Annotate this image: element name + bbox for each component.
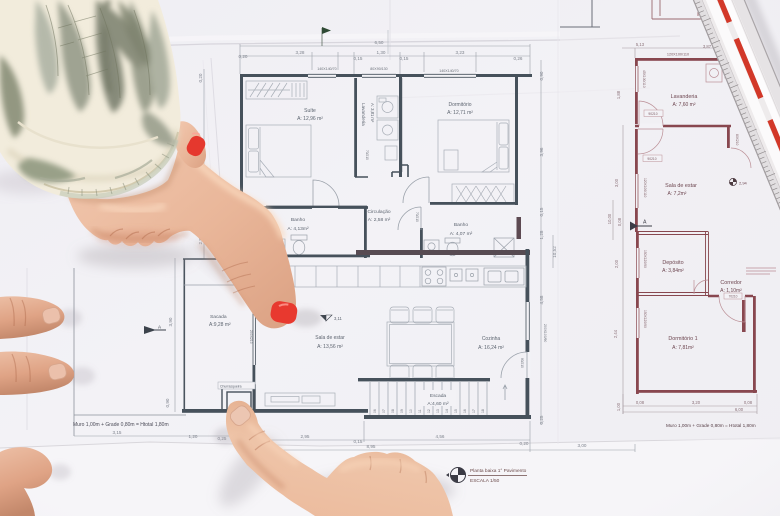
- svg-text:11: 11: [418, 409, 422, 413]
- svg-text:2,44: 2,44: [613, 329, 618, 338]
- svg-text:3,00: 3,00: [614, 178, 619, 187]
- svg-text:07: 07: [382, 409, 386, 413]
- svg-text:Sala de estar: Sala de estar: [315, 335, 345, 341]
- svg-text:Sala de estar: Sala de estar: [665, 183, 697, 189]
- svg-text:Cozinha: Cozinha: [482, 336, 501, 342]
- svg-text:12: 12: [427, 409, 431, 413]
- svg-text:8,95: 8,95: [367, 444, 376, 449]
- svg-text:140X140/70: 140X140/70: [439, 69, 458, 73]
- svg-text:A: 4,07 m²: A: 4,07 m²: [450, 231, 473, 237]
- svg-text:2,94: 2,94: [739, 181, 748, 186]
- svg-text:Depósito: Depósito: [662, 260, 683, 266]
- svg-text:Banho: Banho: [291, 217, 305, 223]
- svg-text:17: 17: [472, 409, 476, 413]
- svg-text:90210: 90210: [648, 112, 657, 116]
- svg-text:A: 7,2m²: A: 7,2m²: [668, 191, 687, 197]
- svg-text:3,90: 3,90: [168, 317, 173, 326]
- svg-text:3,23: 3,23: [456, 50, 465, 55]
- svg-text:0,15: 0,15: [354, 56, 363, 61]
- svg-text:3,96: 3,96: [539, 147, 544, 156]
- svg-text:1,88: 1,88: [616, 90, 621, 99]
- svg-text:0,90: 0,90: [165, 398, 170, 407]
- svg-text:A: 16,24 m²: A: 16,24 m²: [478, 345, 504, 351]
- svg-text:A: 3,81 m²: A: 3,81 m²: [370, 103, 375, 123]
- svg-text:80/210: 80/210: [520, 358, 524, 368]
- svg-text:15: 15: [454, 409, 458, 413]
- svg-text:Circulação: Circulação: [367, 209, 390, 215]
- svg-text:0,15: 0,15: [354, 439, 363, 444]
- svg-text:4,58: 4,58: [539, 295, 544, 304]
- svg-text:Planta baixa 1° Pavimento: Planta baixa 1° Pavimento: [470, 468, 527, 474]
- svg-text:200X210: 200X210: [249, 330, 253, 344]
- svg-text:140X140/70: 140X140/70: [317, 67, 336, 71]
- svg-text:Lavanderia: Lavanderia: [361, 103, 366, 126]
- svg-text:Banho: Banho: [454, 222, 468, 228]
- svg-text:Sacada: Sacada: [210, 314, 227, 320]
- svg-text:0,08: 0,08: [636, 400, 645, 405]
- svg-text:120X100/110: 120X100/110: [667, 53, 689, 57]
- svg-text:0,20: 0,20: [239, 54, 248, 59]
- svg-text:A: 2,58 m²: A: 2,58 m²: [368, 217, 391, 223]
- svg-text:A: 12,96 m²: A: 12,96 m²: [297, 116, 323, 122]
- svg-text:70/210: 70/210: [365, 150, 369, 160]
- svg-text:2,00: 2,00: [614, 259, 619, 268]
- svg-text:6,50: 6,50: [375, 40, 384, 45]
- svg-text:10,00: 10,00: [607, 213, 612, 224]
- svg-text:A: 13,56 m²: A: 13,56 m²: [317, 344, 343, 350]
- svg-text:6,00: 6,00: [735, 407, 744, 412]
- svg-text:45X100/110: 45X100/110: [642, 70, 646, 88]
- svg-text:0,26: 0,26: [514, 56, 523, 61]
- svg-text:A:9,28 m²: A:9,28 m²: [209, 322, 231, 328]
- svg-text:3,28: 3,28: [296, 50, 305, 55]
- svg-text:0,15: 0,15: [400, 56, 409, 61]
- svg-text:A: 4,13m²: A: 4,13m²: [287, 226, 309, 232]
- svg-text:A: 7,60 m²: A: 7,60 m²: [672, 102, 695, 108]
- svg-text:200X100/90: 200X100/90: [543, 324, 547, 342]
- svg-text:A: 3,84m²: A: 3,84m²: [662, 268, 684, 274]
- svg-text:06: 06: [373, 409, 377, 413]
- svg-text:18: 18: [481, 409, 485, 413]
- svg-text:1,30: 1,30: [377, 50, 386, 55]
- svg-text:0,08: 0,08: [744, 400, 753, 405]
- svg-text:80X210: 80X210: [735, 134, 739, 146]
- svg-text:70210: 70210: [729, 295, 738, 299]
- svg-text:16: 16: [463, 409, 467, 413]
- svg-text:Muro 1,00m + Grade 0,80m = Hto: Muro 1,00m + Grade 0,80m = Htotal 1,80m: [73, 422, 169, 428]
- svg-text:Dormitório 1: Dormitório 1: [668, 336, 697, 342]
- svg-text:0,25: 0,25: [539, 415, 544, 424]
- svg-text:0,20: 0,20: [520, 441, 529, 446]
- svg-text:1,28: 1,28: [539, 230, 544, 239]
- svg-text:2,95: 2,95: [301, 434, 310, 439]
- svg-text:1,20: 1,20: [189, 434, 198, 439]
- svg-text:5,13: 5,13: [636, 42, 645, 47]
- svg-text:14: 14: [445, 409, 449, 413]
- svg-text:0,20: 0,20: [198, 73, 203, 82]
- svg-text:Escada: Escada: [430, 393, 447, 399]
- svg-text:4,56: 4,56: [436, 434, 445, 439]
- svg-text:120X100/110: 120X100/110: [643, 178, 647, 198]
- svg-text:80X90/130: 80X90/130: [370, 67, 387, 71]
- svg-text:A: 12,71 m²: A: 12,71 m²: [447, 110, 473, 116]
- svg-text:3,20: 3,20: [692, 400, 701, 405]
- svg-text:3,00: 3,00: [578, 443, 587, 448]
- svg-text:3,87: 3,87: [703, 44, 712, 49]
- svg-text:70/210: 70/210: [415, 212, 419, 222]
- svg-text:13: 13: [436, 409, 440, 413]
- svg-text:A: 7,81m²: A: 7,81m²: [672, 345, 694, 351]
- svg-text:A:4,60 m²: A:4,60 m²: [427, 401, 449, 407]
- svg-text:10: 10: [409, 409, 413, 413]
- svg-text:3,15: 3,15: [113, 430, 122, 435]
- svg-text:09: 09: [400, 409, 404, 413]
- svg-text:Muro 1,00m + Grade 0,80m = Hto: Muro 1,00m + Grade 0,80m = Htotal 1,80m: [666, 423, 756, 428]
- svg-text:Dormitório: Dormitório: [448, 102, 471, 108]
- svg-text:90210: 90210: [647, 157, 656, 161]
- svg-text:Lavanderia: Lavanderia: [671, 94, 698, 100]
- svg-text:ESCALA 1/50: ESCALA 1/50: [470, 478, 500, 484]
- svg-text:0,90: 0,90: [539, 71, 544, 80]
- svg-text:Suíte: Suíte: [304, 108, 316, 114]
- svg-text:150X120/90: 150X120/90: [643, 310, 647, 328]
- svg-text:0,15: 0,15: [539, 207, 544, 216]
- svg-text:Churrasqueira: Churrasqueira: [220, 385, 242, 389]
- svg-text:3,11: 3,11: [334, 316, 343, 321]
- svg-text:Corredor: Corredor: [720, 280, 741, 286]
- svg-text:08: 08: [391, 409, 395, 413]
- svg-text:150X120/90: 150X120/90: [643, 250, 647, 268]
- svg-text:A: A: [643, 220, 647, 226]
- svg-text:0,08: 0,08: [617, 217, 622, 226]
- svg-text:10,52: 10,52: [552, 246, 557, 258]
- svg-text:1,00: 1,00: [616, 402, 621, 411]
